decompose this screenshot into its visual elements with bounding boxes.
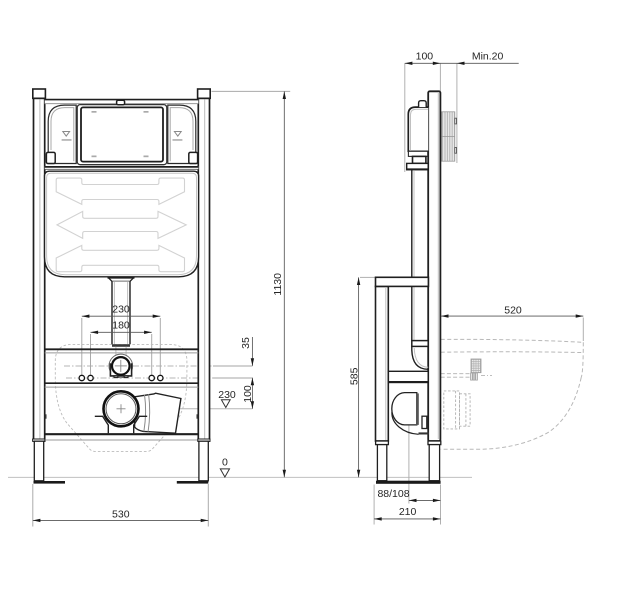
svg-text:230: 230 (218, 389, 236, 401)
svg-text:88/108: 88/108 (377, 488, 409, 500)
svg-text:585: 585 (348, 367, 360, 385)
svg-text:0: 0 (222, 457, 228, 469)
svg-text:530: 530 (112, 509, 130, 521)
svg-text:Min.20: Min.20 (472, 50, 504, 62)
svg-text:1130: 1130 (272, 273, 284, 296)
svg-text:180: 180 (112, 319, 130, 331)
svg-text:210: 210 (399, 506, 417, 518)
svg-text:520: 520 (504, 304, 522, 316)
svg-text:100: 100 (242, 385, 254, 403)
svg-text:35: 35 (240, 337, 252, 349)
svg-text:230: 230 (112, 303, 130, 315)
svg-text:100: 100 (416, 50, 434, 62)
